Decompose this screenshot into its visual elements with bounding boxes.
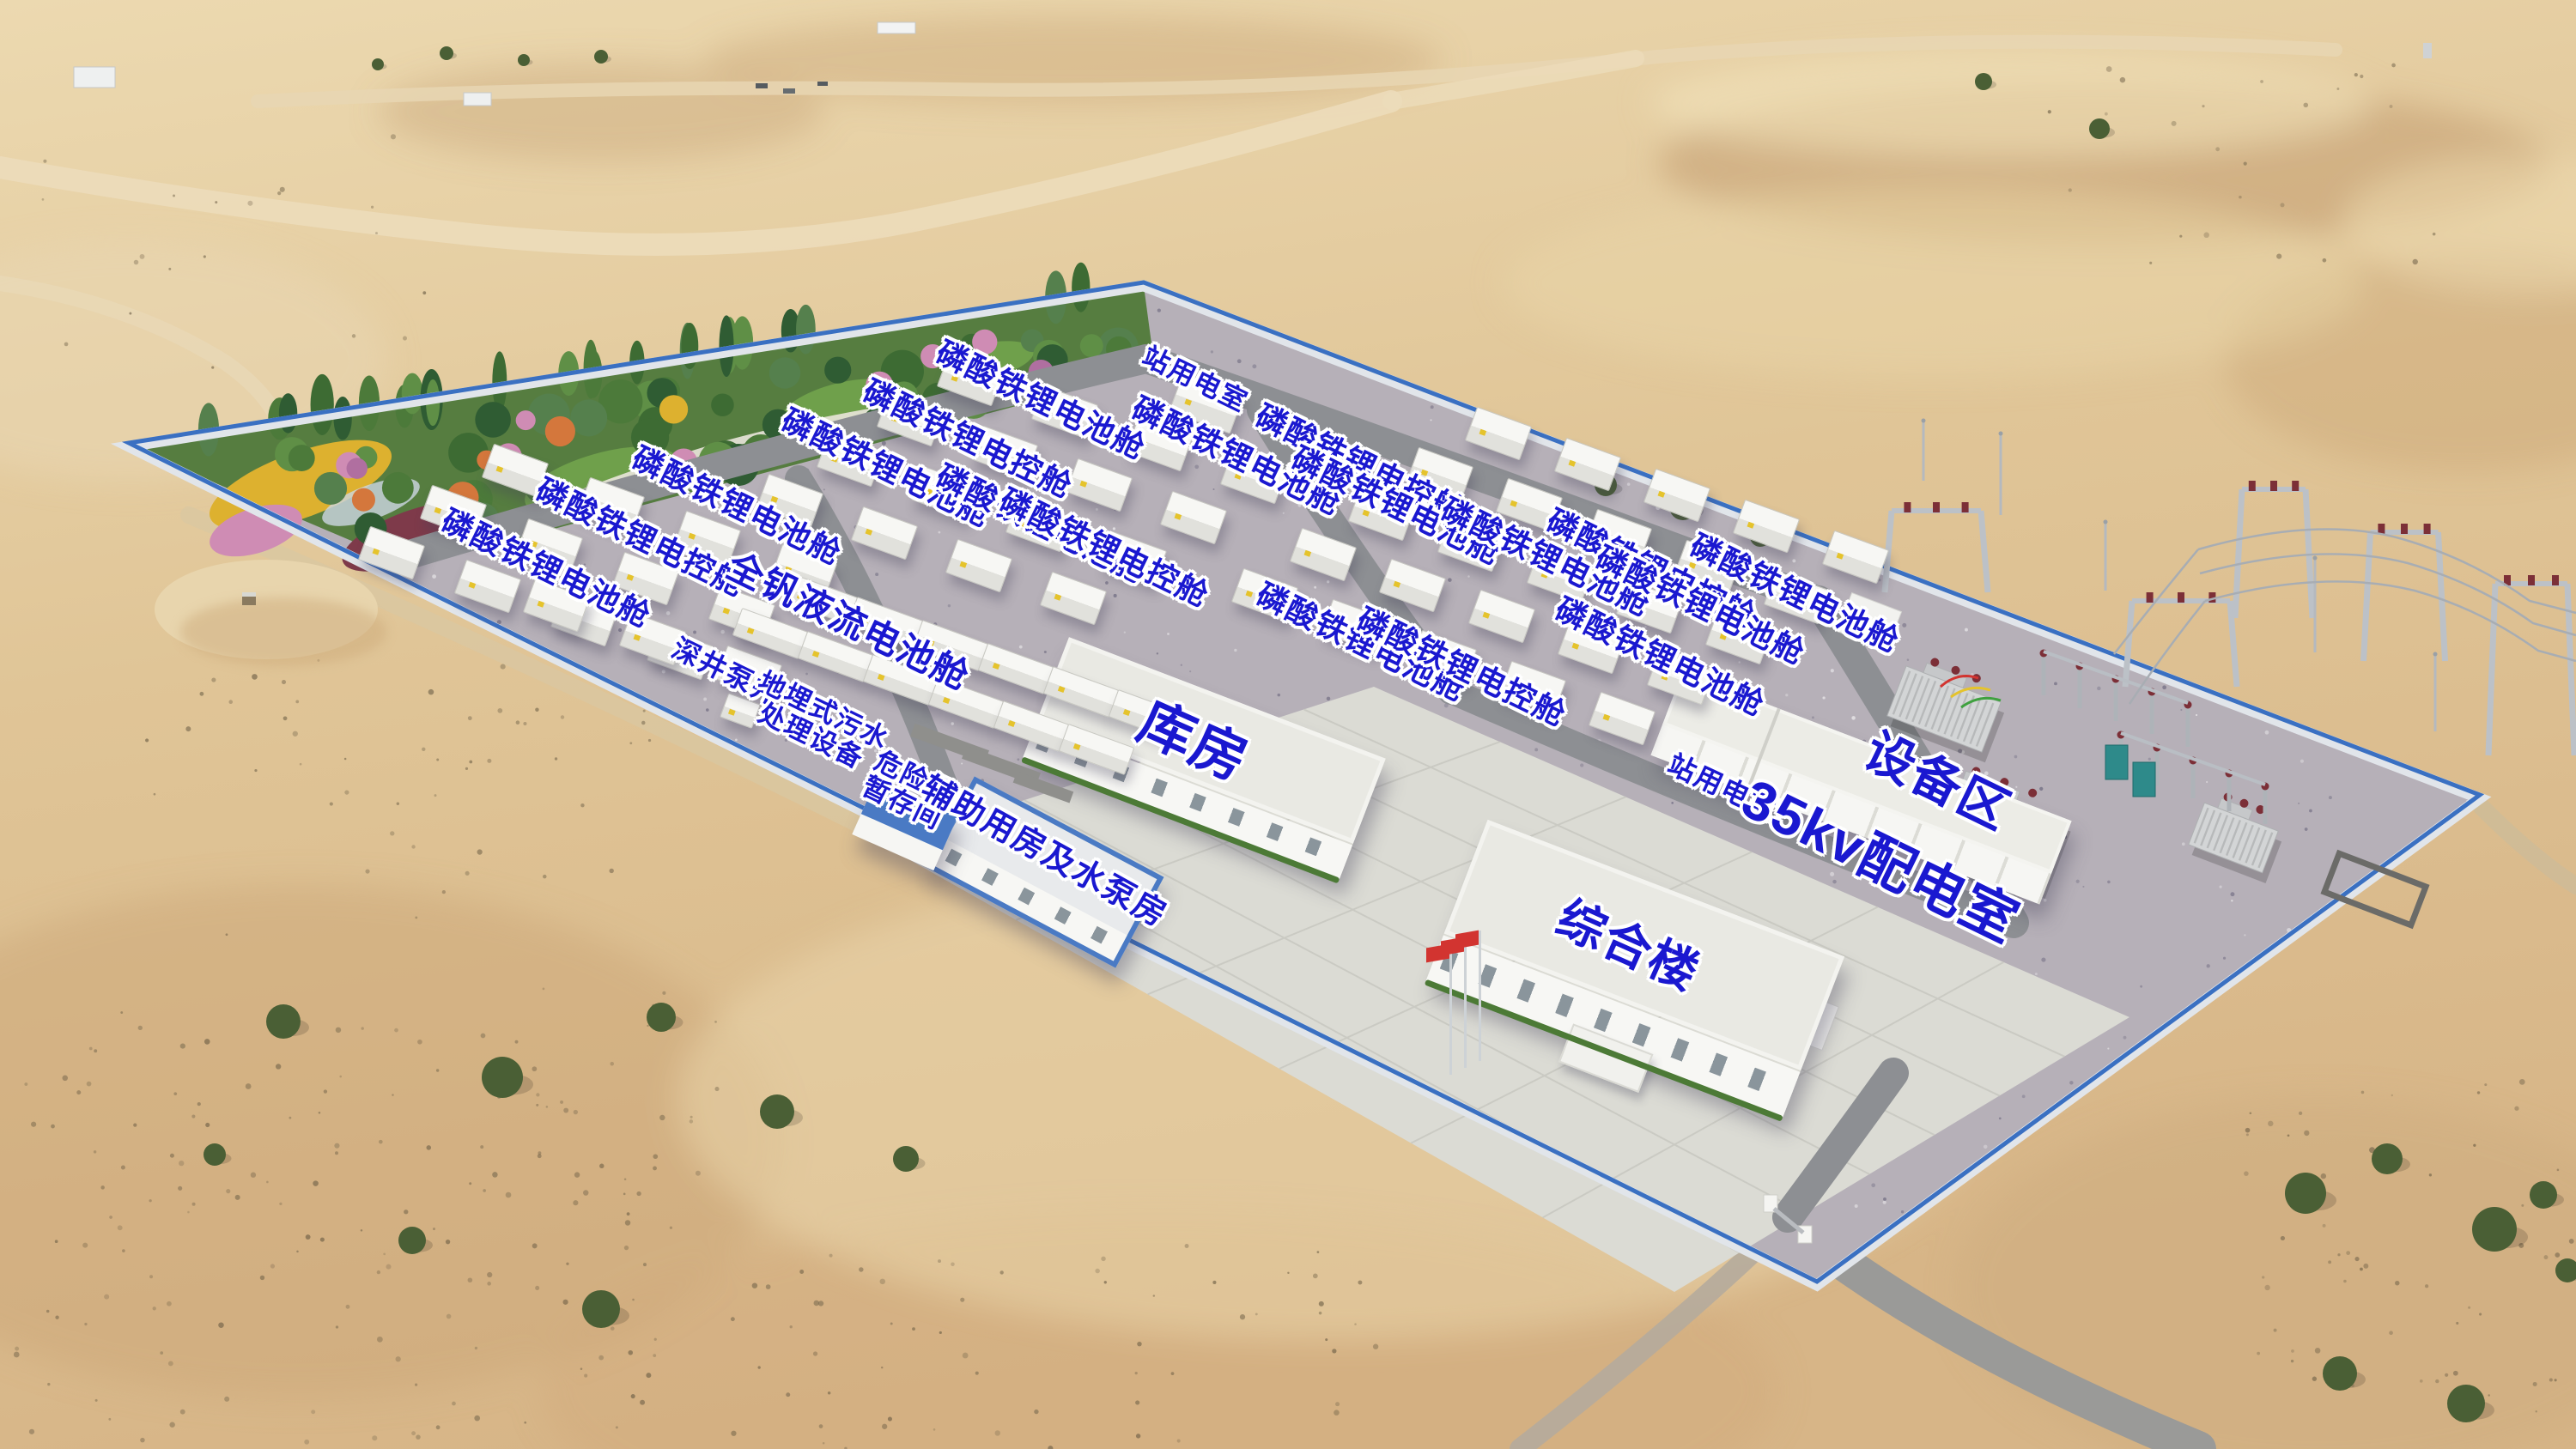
terrain-layer <box>0 0 2576 1449</box>
aerial-site-plan: 磷酸铁锂电池舱磷酸铁锂电控舱磷酸铁锂电池舱磷酸铁锂电池舱磷酸铁锂电控舱磷酸铁锂电… <box>0 0 2576 1449</box>
